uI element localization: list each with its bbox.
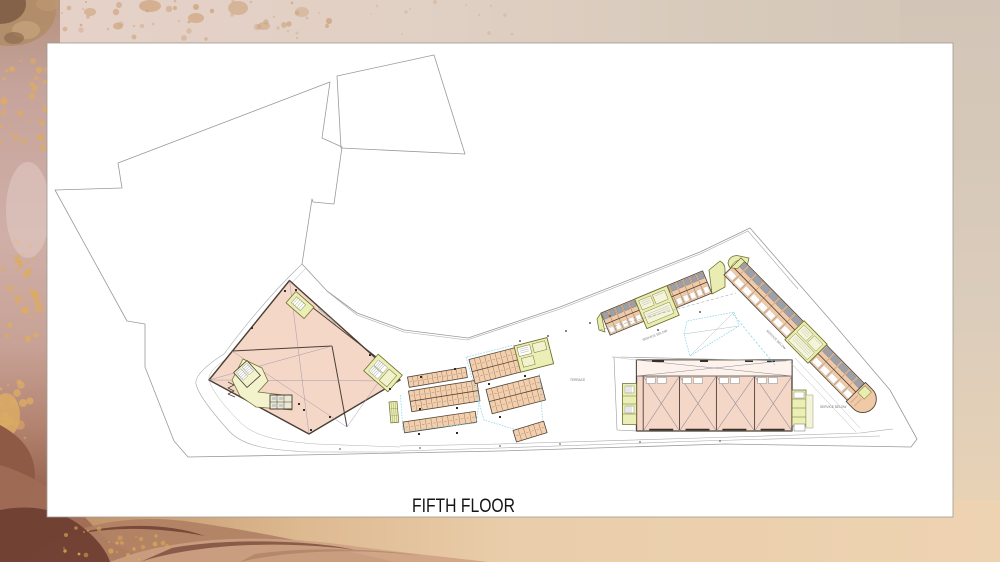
svg-text:FIFTH FLOOR: FIFTH FLOOR (412, 495, 515, 517)
svg-text:TERRACE: TERRACE (570, 378, 585, 382)
svg-text:SERVICE BELOW: SERVICE BELOW (820, 405, 846, 409)
